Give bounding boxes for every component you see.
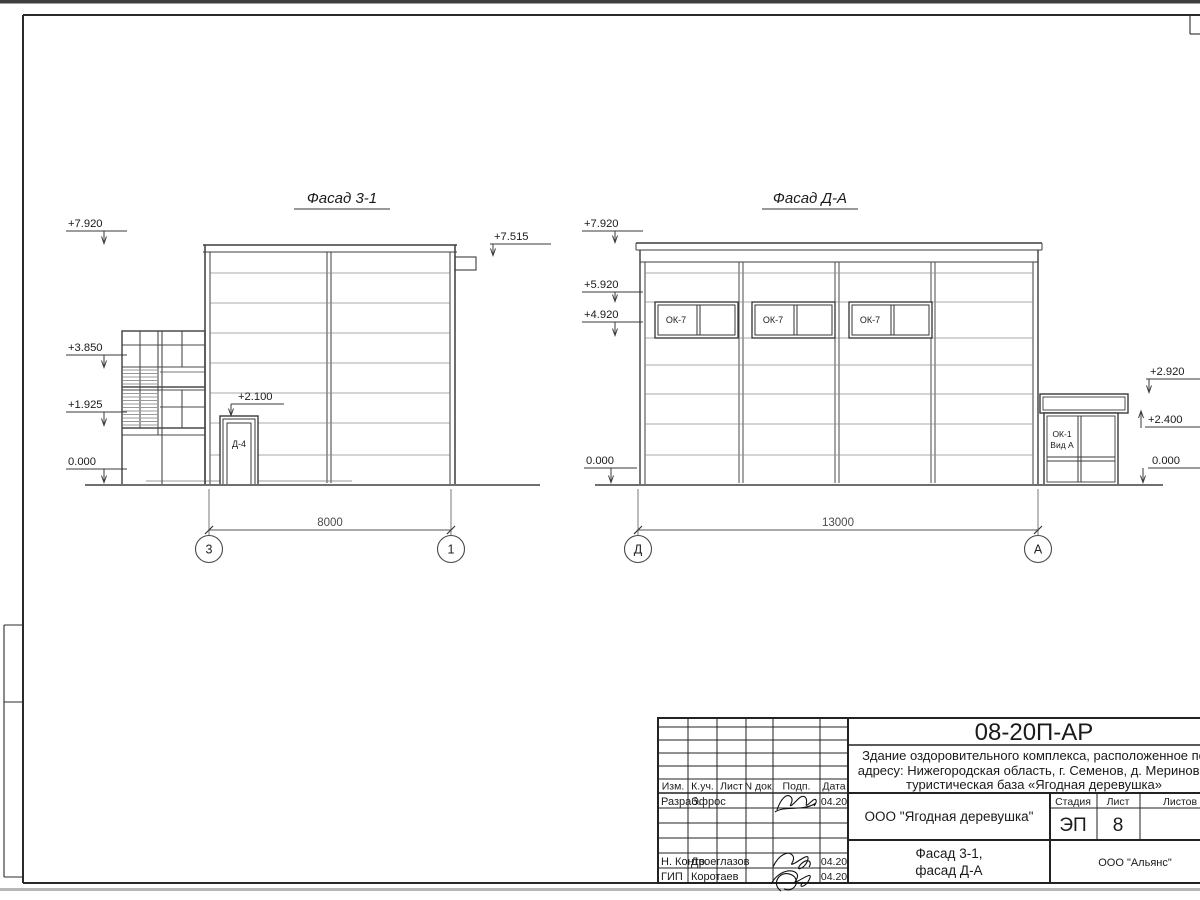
drawing-canvas: Фасад 3-1	[0, 0, 1200, 900]
col-izm: Изм.	[662, 781, 685, 793]
mark-3850: +3.850	[66, 342, 127, 368]
row-gip-name: Коротаев	[691, 871, 739, 883]
description-line2: адресу: Нижегородская область, г. Семено…	[858, 763, 1200, 778]
facade-right-windows: ОК-7 ОК-7 ОК-7	[655, 302, 932, 338]
mark-0-left: 0.000	[66, 456, 127, 483]
mark-4920: +4.920	[582, 309, 643, 336]
annex-label-line1: ОК-1	[1052, 429, 1071, 439]
row-nkontr-name: Двоеглазов	[691, 856, 750, 868]
mark-text: +7.920	[68, 218, 103, 230]
annex-label-line2: Вид А	[1050, 440, 1074, 450]
axis-label-3: 3	[206, 543, 213, 557]
row-razrab-date: 04.20	[821, 796, 847, 808]
doc-number: 08-20П-АР	[975, 719, 1094, 746]
panel-joints	[739, 262, 935, 483]
window-ok7-2: ОК-7	[752, 302, 835, 338]
col-ndoc: N док.	[745, 781, 775, 793]
axis-markers-left: 3 1	[196, 536, 465, 563]
company-name: ООО "Альянс"	[1098, 857, 1172, 869]
window-label-1: ОК-7	[666, 315, 686, 325]
mark-1925: +1.925	[66, 399, 127, 426]
row-gip-date: 04.20	[821, 871, 847, 883]
signatures	[771, 796, 816, 891]
col-data: Дата	[822, 781, 845, 793]
facade-right: Фасад Д-А	[582, 190, 1200, 563]
mark-text: +7.515	[494, 231, 529, 243]
mark-7515: +7.515	[490, 231, 551, 256]
axis-label-a: А	[1034, 543, 1043, 557]
col-podp: Подп.	[783, 781, 811, 793]
subject-line1: Фасад 3-1,	[916, 846, 983, 861]
mark-text: +7.920	[584, 218, 619, 230]
dimension-left: 8000	[205, 489, 455, 536]
window-label-3: ОК-7	[860, 315, 880, 325]
mark-2100: +2.100	[229, 391, 285, 416]
sheets-label: Листов	[1163, 796, 1198, 808]
facade-left-title: Фасад 3-1	[307, 190, 377, 207]
mark-text: +2.400	[1148, 414, 1183, 426]
window-ok7-3: ОК-7	[849, 302, 932, 338]
row-nkontr-date: 04.20	[821, 856, 847, 868]
axis-markers-right: Д А	[625, 536, 1052, 563]
screen-top-strip	[0, 0, 1200, 4]
mark-7920-right: +7.920	[582, 218, 643, 243]
description-line3: туристическая база «Ягодная деревушка»	[906, 777, 1162, 792]
window-label-2: ОК-7	[763, 315, 783, 325]
row-gip-label: ГИП	[661, 871, 683, 883]
stage-value: ЭП	[1059, 815, 1086, 836]
facade-left-annex	[122, 331, 205, 485]
title-block: Изм. К.уч. Лист N док. Подп. Дата Разраб…	[658, 718, 1200, 891]
facade-left-building	[146, 245, 476, 485]
drawing-sheet: Фасад 3-1	[0, 0, 1200, 900]
mark-text: 0.000	[586, 455, 614, 467]
mark-text: +5.920	[584, 279, 619, 291]
facade-left: Фасад 3-1	[66, 190, 551, 563]
mark-text: +3.850	[68, 342, 103, 354]
row-razrab-name: Эфрос	[691, 796, 726, 808]
facade-left-door: Д-4	[220, 416, 258, 485]
org-name: ООО "Ягодная деревушка"	[865, 809, 1034, 824]
dimension-right: 13000	[634, 489, 1042, 536]
facade-right-building	[636, 243, 1042, 485]
mark-2920: +2.920	[1146, 366, 1200, 393]
sheet-label: Лист	[1107, 796, 1130, 808]
mark-0-right-facade-left: 0.000	[584, 455, 637, 483]
axis-label-d: Д	[634, 543, 643, 557]
roof-spout	[455, 257, 476, 270]
description-line1: Здание оздоровительного комплекса, распо…	[862, 748, 1200, 763]
mark-text: +2.920	[1150, 366, 1185, 378]
mark-text: +4.920	[584, 309, 619, 321]
door-label: Д-4	[232, 439, 246, 449]
subject-line2: фасад Д-А	[915, 863, 982, 878]
sheet-bottom-edge	[0, 888, 1200, 891]
mark-7920-left: +7.920	[66, 218, 127, 244]
mark-text: +1.925	[68, 399, 103, 411]
col-list: Лист	[720, 781, 743, 793]
axis-label-1: 1	[448, 543, 455, 557]
mark-text: 0.000	[1152, 455, 1180, 467]
col-kuch: К.уч.	[691, 781, 714, 793]
window-ok7-1: ОК-7	[655, 302, 738, 338]
sheet-number: 8	[1113, 815, 1124, 836]
mark-0-right-facade-right: 0.000	[1141, 455, 1200, 483]
mark-text: +2.100	[238, 391, 273, 403]
elevation-marks-left: +7.920 +3.850 +1.925 0.000 +7.515	[66, 218, 551, 483]
mark-2400: +2.400	[1139, 411, 1200, 428]
mark-5920: +5.920	[582, 279, 643, 302]
stage-label: Стадия	[1055, 796, 1091, 808]
dim-text-right: 13000	[822, 517, 854, 529]
dim-text-left: 8000	[317, 517, 343, 529]
facade-right-annex: ОК-1 Вид А	[1040, 394, 1128, 485]
facade-right-title: Фасад Д-А	[773, 190, 847, 207]
mark-text: 0.000	[68, 456, 96, 468]
